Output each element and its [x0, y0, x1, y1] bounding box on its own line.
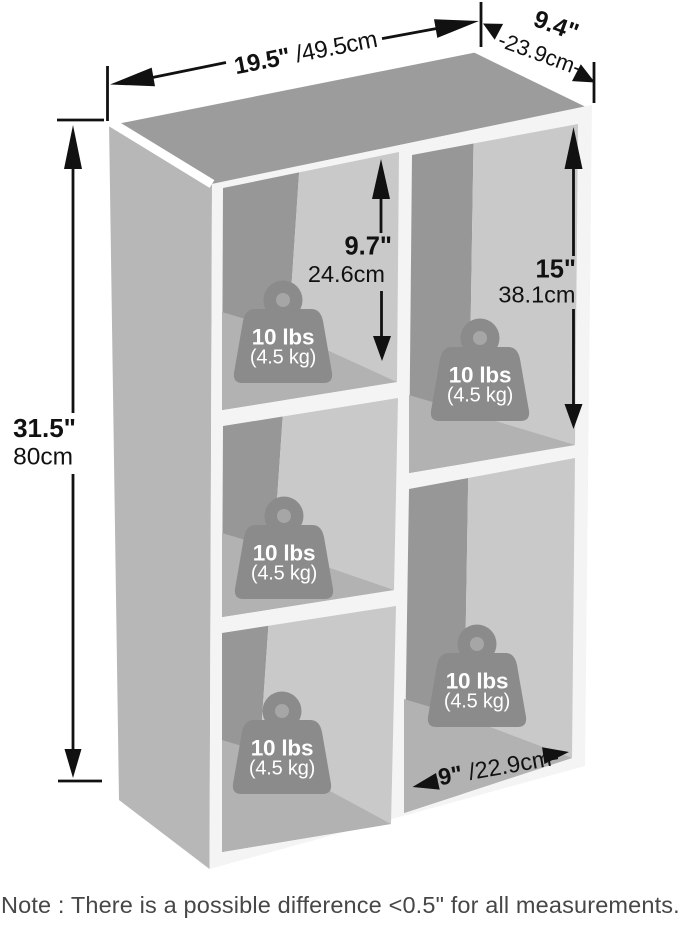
svg-text:80cm: 80cm	[13, 443, 73, 470]
svg-text:24.6cm: 24.6cm	[308, 261, 385, 287]
svg-text:(4.5 kg): (4.5 kg)	[251, 563, 317, 585]
svg-text:(4.5 kg): (4.5 kg)	[249, 758, 315, 780]
svg-text:(4.5 kg): (4.5 kg)	[250, 347, 316, 369]
svg-text:(4.5 kg): (4.5 kg)	[447, 385, 513, 407]
svg-text:31.5": 31.5"	[13, 413, 76, 443]
svg-text:9.7": 9.7"	[344, 233, 392, 261]
svg-text:38.1cm: 38.1cm	[498, 282, 575, 308]
svg-text:(4.5 kg): (4.5 kg)	[444, 691, 510, 713]
svg-text:15": 15"	[536, 256, 576, 284]
